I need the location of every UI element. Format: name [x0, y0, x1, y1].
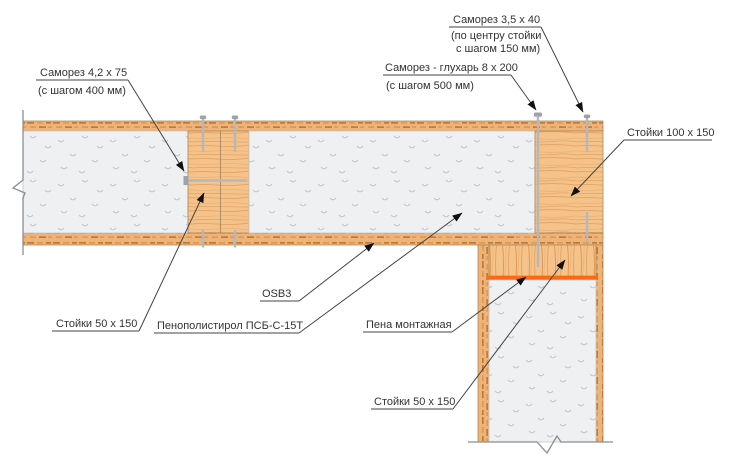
label-studs-50x150-left: Стойки 50 х 150 — [56, 318, 137, 330]
top-stud-50x150 — [489, 245, 596, 276]
label-screw-35x40-line1: Саморез 3,5 х 40 — [453, 14, 540, 26]
foam-core-left — [23, 131, 188, 233]
lag-screw-head — [534, 113, 542, 117]
label-studs-50x150-bottom: Стойки 50 х 150 — [374, 396, 455, 408]
right-osb-skin — [596, 245, 603, 442]
screw-head — [232, 116, 238, 120]
double-stud-50x150 — [188, 131, 249, 233]
label-lag-screw-line1: Саморез - глухарь 8 х 200 — [385, 62, 518, 74]
stud-100x150 — [535, 131, 603, 233]
foam-core-vertical — [489, 280, 596, 442]
label-osb3: OSB3 — [262, 288, 291, 300]
screw-head — [200, 116, 206, 120]
top-osb-skin — [23, 121, 603, 131]
label-screw-35x40-line3: с шагом 150 мм) — [456, 43, 540, 55]
screw-head — [584, 115, 590, 119]
label-lag-screw-line2: (с шагом 500 мм) — [386, 80, 474, 92]
vertical-wall-panel — [468, 245, 613, 453]
label-studs-100x150: Стойки 100 х 150 — [627, 127, 714, 139]
mounting-foam-seam — [487, 276, 598, 280]
label-screw-42x75-line2: (с шагом 400 мм) — [38, 85, 126, 97]
foam-core-middle — [249, 131, 535, 233]
horizontal-wall-panel — [13, 110, 603, 255]
label-screw-42x75-line1: Саморез 4,2 х 75 — [40, 67, 127, 79]
left-osb-skin — [478, 245, 489, 442]
leader-lag-screw — [511, 75, 536, 110]
diagram-canvas: Саморез 4,2 х 75 (с шагом 400 мм) Саморе… — [0, 0, 730, 460]
corner-joint-drawing: Саморез 4,2 х 75 (с шагом 400 мм) Саморе… — [0, 0, 730, 460]
label-mounting-foam: Пена монтажная — [366, 319, 452, 331]
bottom-osb-skin — [23, 233, 603, 245]
label-polystyrene: Пенополистирол ПСБ-С-15Т — [157, 320, 303, 332]
leader-screw-35x40 — [541, 27, 583, 112]
label-screw-35x40-line2: (по центру стойки — [451, 30, 541, 42]
leader-osb3 — [299, 243, 374, 301]
screw-4-2x75-head — [184, 176, 189, 185]
